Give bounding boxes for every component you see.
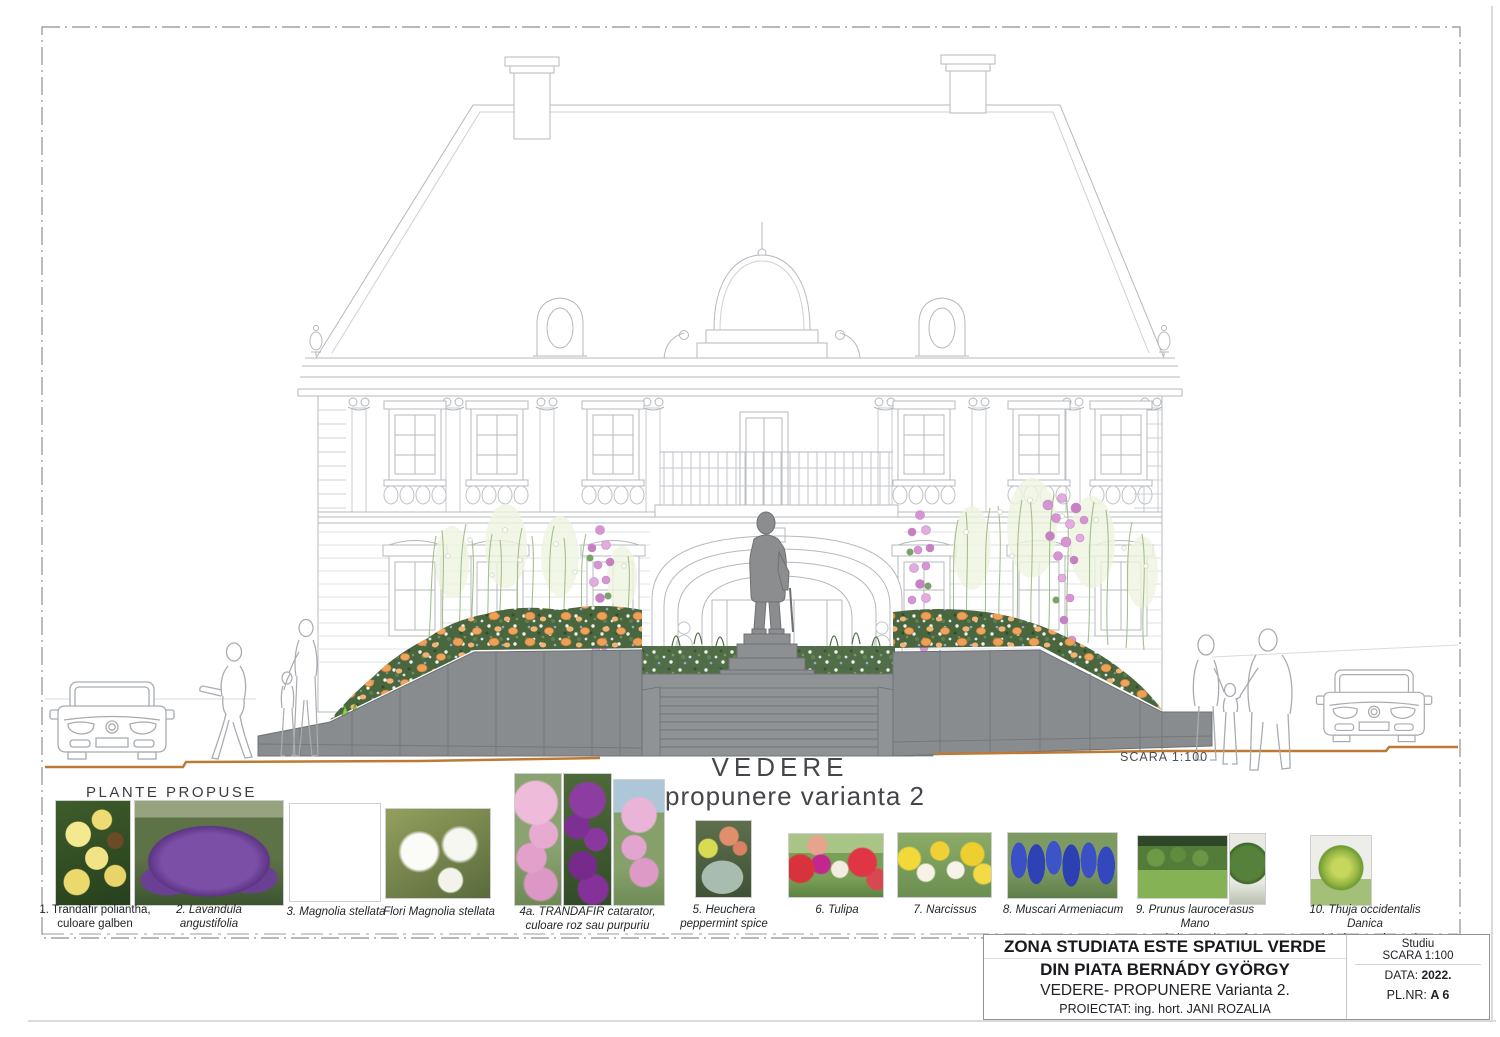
title-line-2: DIN PIATA BERNÁDY GYÖRGY (984, 960, 1346, 980)
plant-label-4a: 4a. TRANDAFIR catarator, culoare roz sau… (505, 905, 670, 934)
plan-sheet: { "page": { "view_title": "VEDERE", "vie… (0, 0, 1500, 1037)
plant-photo-prunus-hedge (1137, 835, 1228, 899)
view-title: VEDERE (660, 752, 900, 783)
plant-photo-prunus-ball (1229, 833, 1266, 905)
car-left (50, 682, 174, 759)
plant-photo-thuja (1310, 835, 1372, 906)
plant-label-5: 5. Heuchera peppermint spice (668, 903, 780, 932)
plant-label-8: 8. Muscari Armeniacum (1000, 903, 1126, 917)
plant-photo-trandafir-catarator-3 (613, 779, 665, 906)
plant-label-6: 6. Tulipa (790, 903, 884, 917)
plant-label-2: 2. Lavandula angustifolia (150, 903, 268, 932)
pedestrian-walker-left (200, 643, 252, 759)
plant-photo-muscari (1007, 832, 1118, 899)
plant-photo-lavandula (134, 800, 284, 906)
plant-photo-flori-magnolia (385, 808, 491, 899)
plan-number-row: PL.NR: A 6 (1347, 988, 1489, 1002)
cornice (298, 358, 1182, 396)
plant-photo-trandafir-catarator-1 (514, 773, 562, 906)
title-block: ZONA STUDIATA ESTE SPATIUL VERDE DIN PIA… (983, 934, 1490, 1020)
plant-label-1: 1. Trandafir poliantha, culoare galben (38, 903, 152, 932)
date-row: DATA: 2022. (1347, 968, 1489, 982)
title-block-meta: Studiu SCARA 1:100 DATA: 2022. PL.NR: A … (1346, 935, 1489, 1019)
stairs (602, 674, 933, 756)
plant-photo-narcissus (897, 832, 992, 898)
title-line-3: VEDERE- PROPUNERE Varianta 2. (984, 982, 1346, 1000)
plant-label-3: 3. Magnolia stellata (278, 905, 394, 919)
view-subtitle: propunere varianta 2 (615, 781, 975, 812)
plant-label-7: 7. Narcissus (896, 903, 994, 917)
plant-photo-trandafir-poliantha (55, 800, 131, 906)
car-right (1316, 670, 1431, 742)
title-block-main: ZONA STUDIATA ESTE SPATIUL VERDE DIN PIA… (984, 935, 1346, 1019)
study-type: Studiu (1347, 938, 1489, 950)
retaining-wall-right (893, 650, 1212, 756)
plant-photo-magnolia-stellata (289, 803, 381, 902)
scale-note: SCARA 1:100 (1120, 750, 1208, 764)
designer-credit: PROIECTAT: ing. hort. JANI ROZALIA (984, 1002, 1346, 1016)
chimney-right (941, 55, 995, 113)
plant-list-heading: PLANTE PROPUSE (86, 784, 257, 801)
scale-value: SCARA 1:100 (1355, 950, 1481, 965)
plant-label-flori: Flori Magnolia stellata (382, 905, 496, 919)
plant-photo-tulipa (788, 833, 884, 898)
plant-photo-trandafir-catarator-2 (563, 773, 612, 906)
family-right (1193, 629, 1292, 770)
plant-photo-heuchera (695, 820, 752, 898)
title-line-1: ZONA STUDIATA ESTE SPATIUL VERDE (984, 937, 1346, 959)
